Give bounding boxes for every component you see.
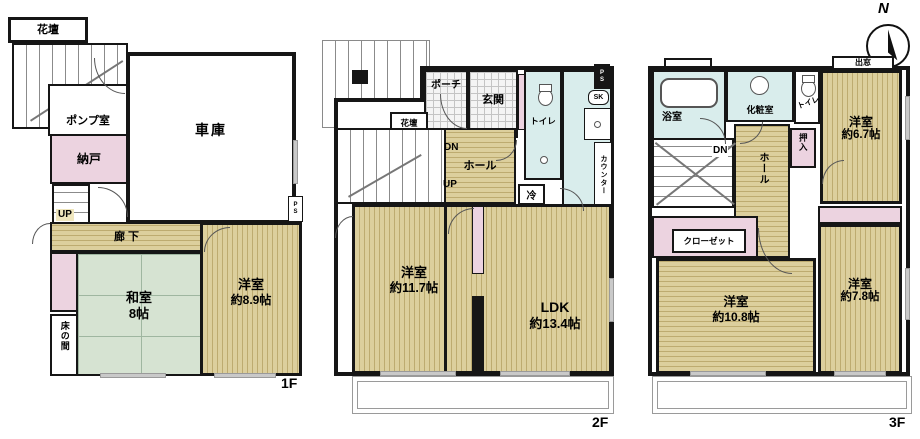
door-arc-hall-1f: [98, 187, 128, 217]
youshitsu-3f-c-label: 洋室: [821, 277, 899, 291]
bathroom-label: 浴室: [662, 112, 682, 124]
hall-2f-label: ホール: [446, 160, 514, 173]
floor-label-1f: 1F: [281, 375, 297, 391]
toilet-3f-icon: [800, 75, 816, 95]
oshiire: 押入: [790, 128, 816, 168]
sink-dot: [594, 121, 601, 128]
youshitsu-3f-b: 洋室 約10.8帖: [656, 258, 816, 374]
window-1f-c: [293, 140, 298, 184]
stairs-dn-3f-label: DN: [712, 145, 728, 157]
bathtub-icon: [660, 78, 718, 108]
youshitsu-1f-label: 洋室: [203, 277, 299, 293]
window-3f-c: [905, 96, 910, 140]
stairs-1f-up: UP: [52, 184, 90, 224]
pipe-space-1f: PS: [288, 196, 303, 222]
balcony-3f: [652, 376, 912, 414]
storeroom-nando-label: 納戸: [52, 152, 126, 166]
powder-room-label: 化粧室: [728, 105, 792, 116]
flower-bed-1f: 花壇: [8, 17, 88, 43]
kitchen-sink-icon: [584, 108, 611, 140]
toilet-2f: トイレ: [524, 70, 562, 180]
kitchen-sk: SK: [588, 90, 609, 105]
storeroom-nando: 納戸: [50, 134, 128, 184]
toilet-3f-label: トイレ: [796, 94, 820, 110]
pipe-space-1f-label: PS: [293, 202, 299, 216]
porch-label: ポーチ: [420, 80, 472, 92]
closet-strip-3f: [818, 206, 902, 224]
kitchen-counter-v-label: カウンター: [598, 155, 608, 195]
stairs-up-2f-label: UP: [443, 179, 457, 191]
compass-north-label: N: [878, 0, 889, 18]
closet-room: クローゼット: [652, 216, 758, 258]
window-1f-b: [214, 373, 276, 378]
bay-window-label: 出窓: [834, 58, 892, 68]
youshitsu-3f-a-size: 約6.7帖: [823, 129, 899, 143]
toilet-3f: トイレ: [794, 70, 820, 124]
flower-bed-2f-label: 花壇: [400, 117, 417, 129]
window-3f-d: [905, 268, 910, 320]
garage: 車庫: [126, 52, 296, 224]
youshitsu-3f-c: 洋室 約7.8帖: [818, 224, 902, 374]
washitsu-label: 和室: [78, 290, 200, 306]
closet-label: クローゼット: [683, 235, 734, 247]
stairs-1f-up-label: UP: [56, 209, 74, 221]
ldk-size: 約13.4帖: [501, 316, 609, 332]
stairs-dn-2f-label: DN: [444, 142, 458, 154]
pump-room-label: ポンプ室: [50, 115, 126, 128]
washitsu-size: 8帖: [78, 306, 200, 322]
youshitsu-1f-size: 約8.9帖: [203, 293, 299, 307]
floor-plan: 花壇 ポンプ室 納戸 UP 車庫 廊下 床の間 和室 8帖: [0, 0, 920, 439]
window-bump-bath: [664, 58, 712, 68]
wall-2f-divider: [472, 296, 484, 374]
toilet-sink-icon: [540, 156, 548, 164]
door-arc-entry-1f: [32, 223, 50, 244]
pipe-space-2f: PS: [594, 64, 610, 89]
bay-window: 出窓: [832, 56, 894, 70]
flower-bed-1f-label: 花壇: [11, 24, 85, 37]
window-2f-c: [609, 278, 614, 322]
closet-1f: [50, 252, 78, 312]
corridor: 廊下: [50, 222, 206, 252]
youshitsu-3f-c-size: 約7.8帖: [821, 291, 899, 305]
closet-label-box: クローゼット: [672, 229, 746, 253]
stair-post: [352, 70, 368, 84]
kitchen-counter-v: カウンター: [594, 142, 612, 208]
window-1f-a: [100, 373, 166, 378]
powder-room: 化粧室: [726, 70, 794, 122]
corridor-label: 廊下: [52, 231, 204, 244]
youshitsu-3f-a-label: 洋室: [823, 115, 899, 129]
pipe-space-2f-label: PS: [599, 70, 605, 84]
garage-label: 車庫: [130, 122, 292, 139]
fridge: 冷: [518, 184, 545, 205]
kitchen-sk-label: SK: [594, 94, 604, 101]
hall-3f-label: ホール: [756, 152, 768, 185]
youshitsu-3f-b-label: 洋室: [659, 295, 813, 310]
powder-sink-icon: [750, 76, 769, 95]
fridge-label: 冷: [527, 187, 537, 202]
washitsu-room: 和室 8帖: [76, 252, 202, 376]
tokonoma-label: 床の間: [59, 321, 70, 351]
genkan-label: 玄関: [470, 94, 516, 107]
toilet-2f-icon: [537, 84, 553, 104]
floor-label-3f: 3F: [889, 414, 905, 430]
ldk-label: LDK: [501, 299, 609, 316]
youshitsu-3f-b-size: 約10.8帖: [659, 310, 813, 324]
tokonoma: 床の間: [50, 314, 78, 376]
balcony-2f: [352, 376, 614, 414]
floor-label-2f: 2F: [592, 414, 608, 430]
toilet-2f-label: トイレ: [526, 116, 560, 126]
oshiire-label: 押入: [798, 133, 808, 152]
